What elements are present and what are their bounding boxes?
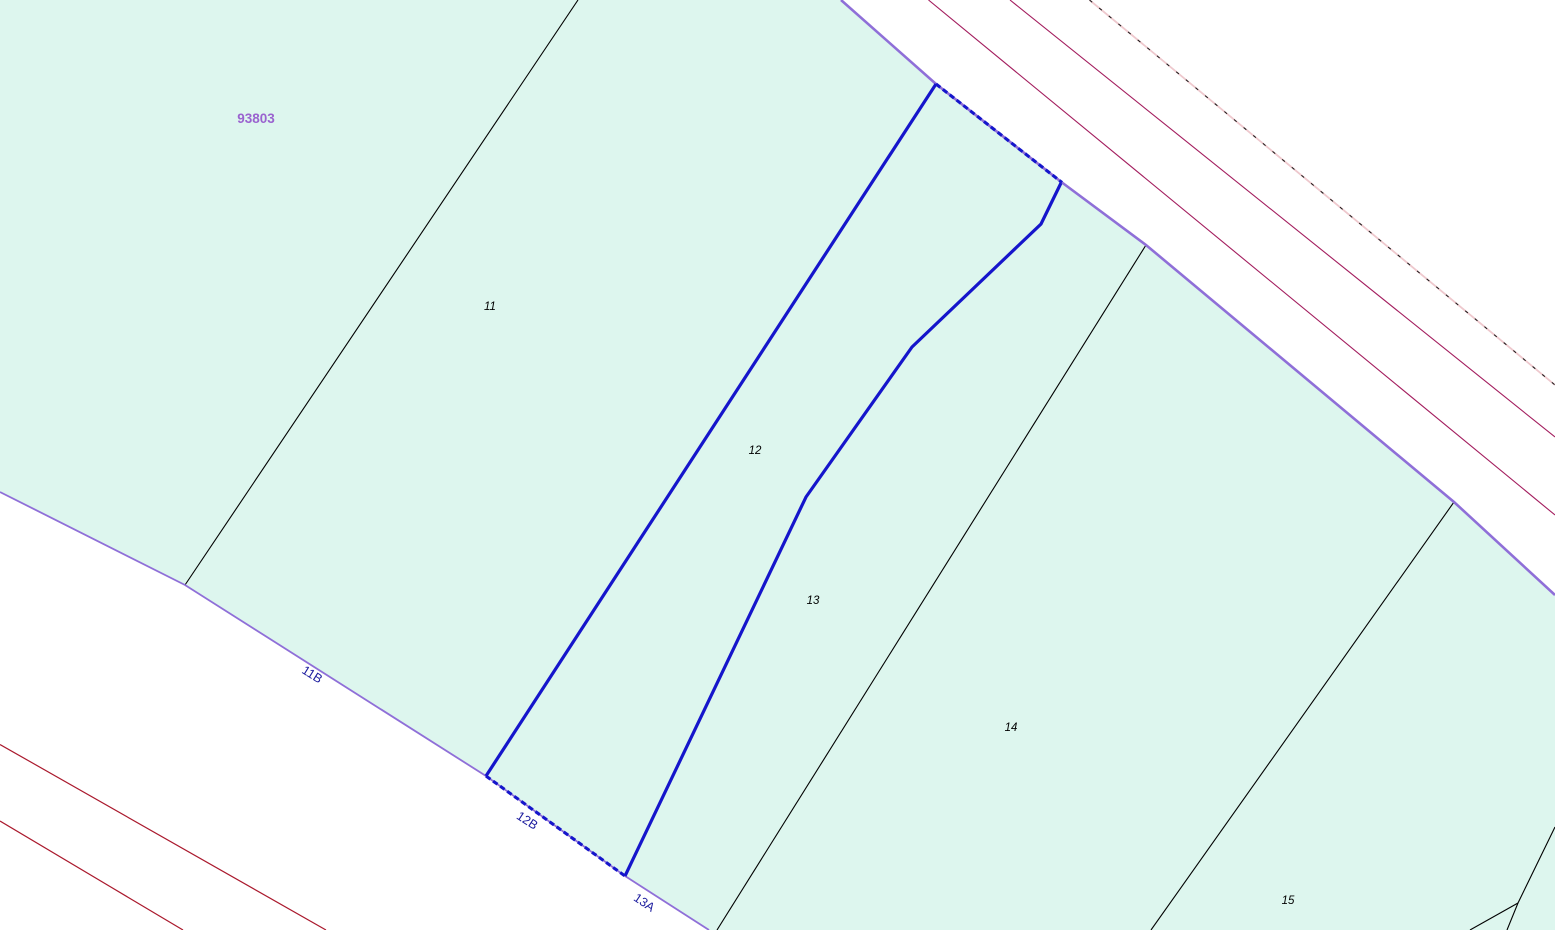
svg-text:93803: 93803 xyxy=(237,111,275,126)
svg-text:13: 13 xyxy=(807,595,820,607)
svg-text:12: 12 xyxy=(749,445,762,457)
svg-text:14: 14 xyxy=(1005,722,1018,734)
svg-text:15: 15 xyxy=(1282,895,1295,907)
svg-text:11: 11 xyxy=(484,301,496,313)
